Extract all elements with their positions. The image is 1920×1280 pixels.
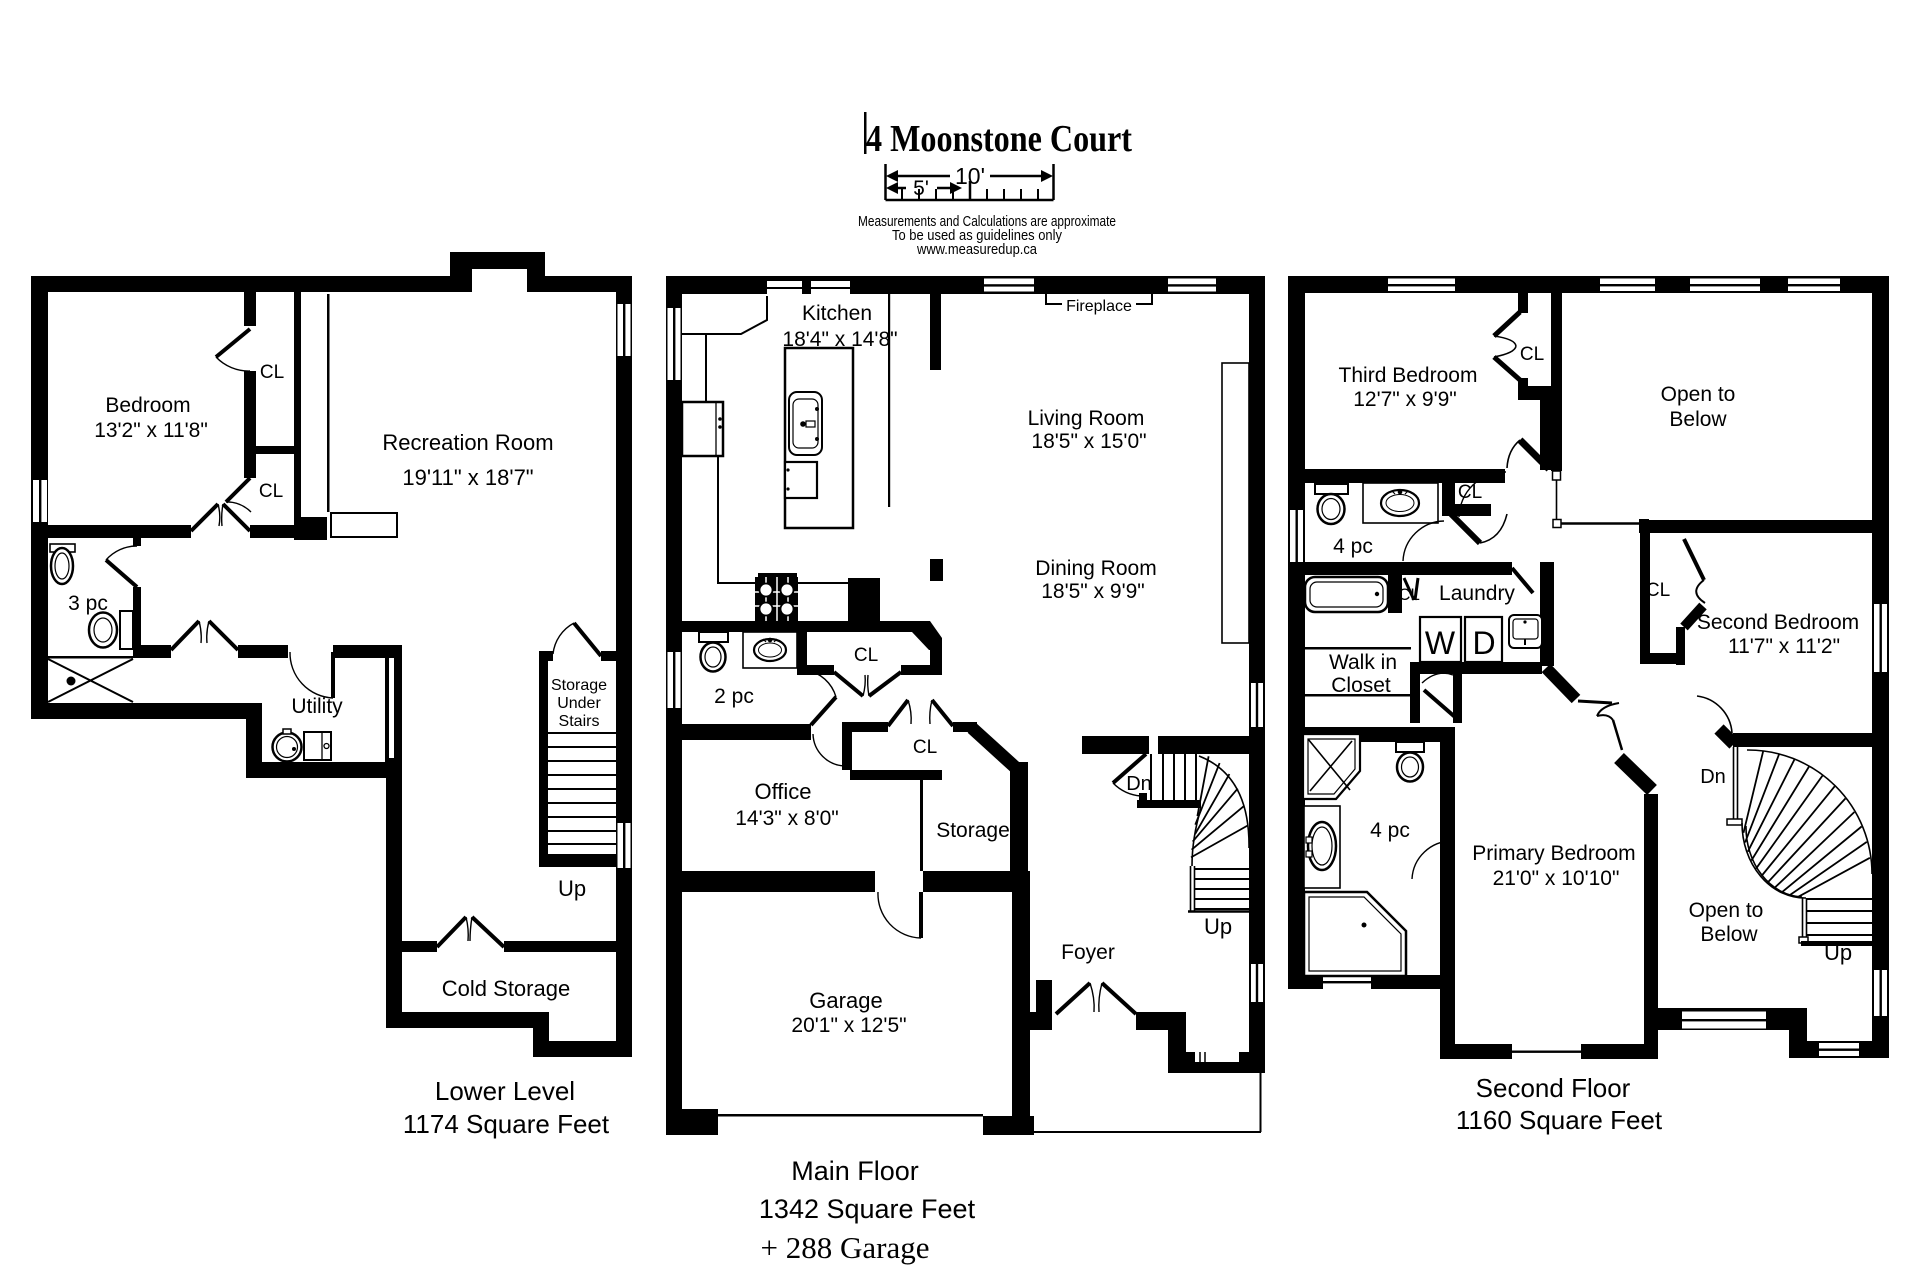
svg-text:Under: Under [557, 695, 601, 712]
svg-text:Lower Level: Lower Level [435, 1076, 575, 1106]
svg-text:Walk in: Walk in [1329, 651, 1397, 674]
svg-text:Bedroom: Bedroom [105, 394, 190, 417]
svg-text:www.measuredup.ca: www.measuredup.ca [916, 241, 1037, 258]
svg-text:CL: CL [854, 645, 878, 666]
svg-text:Third Bedroom: Third Bedroom [1339, 364, 1478, 387]
svg-text:Garage: Garage [809, 988, 882, 1013]
svg-text:19'11" x 18'7": 19'11" x 18'7" [402, 465, 533, 490]
svg-text:D: D [1472, 625, 1495, 661]
svg-text:Dining Room: Dining Room [1035, 557, 1156, 580]
svg-text:Office: Office [754, 779, 811, 804]
svg-text:Laundry: Laundry [1439, 582, 1515, 605]
svg-text:4 pc: 4 pc [1370, 819, 1410, 842]
svg-text:Stairs: Stairs [559, 713, 600, 730]
svg-text:Storage: Storage [551, 677, 607, 694]
svg-text:CL: CL [259, 481, 283, 502]
svg-text:W: W [1425, 625, 1456, 661]
svg-text:Below: Below [1700, 923, 1758, 946]
svg-text:Up: Up [1204, 914, 1232, 939]
svg-text:1342 Square Feet: 1342 Square Feet [759, 1194, 976, 1224]
svg-text:CL: CL [1646, 580, 1670, 601]
svg-text:Main Floor: Main Floor [791, 1156, 919, 1186]
svg-text:3 pc: 3 pc [68, 592, 108, 615]
svg-text:CL: CL [1520, 344, 1544, 365]
svg-text:20'1" x 12'5": 20'1" x 12'5" [791, 1014, 906, 1037]
svg-text:Living Room: Living Room [1028, 407, 1145, 430]
svg-text:4 pc: 4 pc [1333, 535, 1373, 558]
svg-text:2 pc: 2 pc [714, 685, 754, 708]
svg-text:CL: CL [1458, 482, 1482, 503]
svg-text:Storage: Storage [936, 819, 1010, 842]
svg-text:Open to: Open to [1689, 899, 1764, 922]
svg-text:Utility: Utility [291, 695, 343, 718]
svg-text:Up: Up [558, 876, 586, 901]
svg-text:Closet: Closet [1331, 674, 1391, 697]
svg-text:1160 Square Feet: 1160 Square Feet [1456, 1105, 1663, 1135]
svg-text:Second Floor: Second Floor [1476, 1073, 1631, 1103]
svg-text:Kitchen: Kitchen [802, 302, 872, 325]
svg-text:14'3" x 8'0": 14'3" x 8'0" [735, 807, 839, 830]
svg-text:Dn: Dn [1700, 766, 1726, 788]
svg-text:CL: CL [913, 737, 937, 758]
svg-text:CL: CL [1398, 585, 1420, 604]
svg-text:18'5" x 15'0": 18'5" x 15'0" [1031, 430, 1146, 453]
svg-text:Second Bedroom: Second Bedroom [1697, 611, 1859, 634]
svg-text:Up: Up [1824, 940, 1852, 965]
svg-text:CL: CL [260, 362, 284, 383]
svg-text:4 Moonstone Court: 4 Moonstone Court [866, 118, 1132, 160]
svg-text:Below: Below [1669, 408, 1727, 431]
svg-text:Open to: Open to [1661, 383, 1736, 406]
svg-text:Fireplace: Fireplace [1066, 298, 1132, 315]
svg-text:18'5" x 9'9": 18'5" x 9'9" [1041, 580, 1145, 603]
svg-text:12'7" x 9'9": 12'7" x 9'9" [1353, 388, 1457, 411]
svg-text:1174 Square Feet: 1174 Square Feet [403, 1109, 610, 1139]
svg-text:11'7" x 11'2": 11'7" x 11'2" [1728, 635, 1840, 658]
svg-text:13'2" x 11'8": 13'2" x 11'8" [94, 419, 208, 442]
svg-text:21'0" x 10'10": 21'0" x 10'10" [1493, 867, 1620, 890]
svg-text:Recreation Room: Recreation Room [382, 430, 553, 455]
svg-text:Cold Storage: Cold Storage [442, 976, 570, 1001]
svg-text:Foyer: Foyer [1061, 941, 1115, 964]
svg-text:5': 5' [913, 177, 929, 200]
svg-text:+ 288 Garage: + 288 Garage [761, 1230, 930, 1265]
svg-text:Dn: Dn [1126, 773, 1152, 795]
svg-text:Primary Bedroom: Primary Bedroom [1472, 842, 1635, 865]
